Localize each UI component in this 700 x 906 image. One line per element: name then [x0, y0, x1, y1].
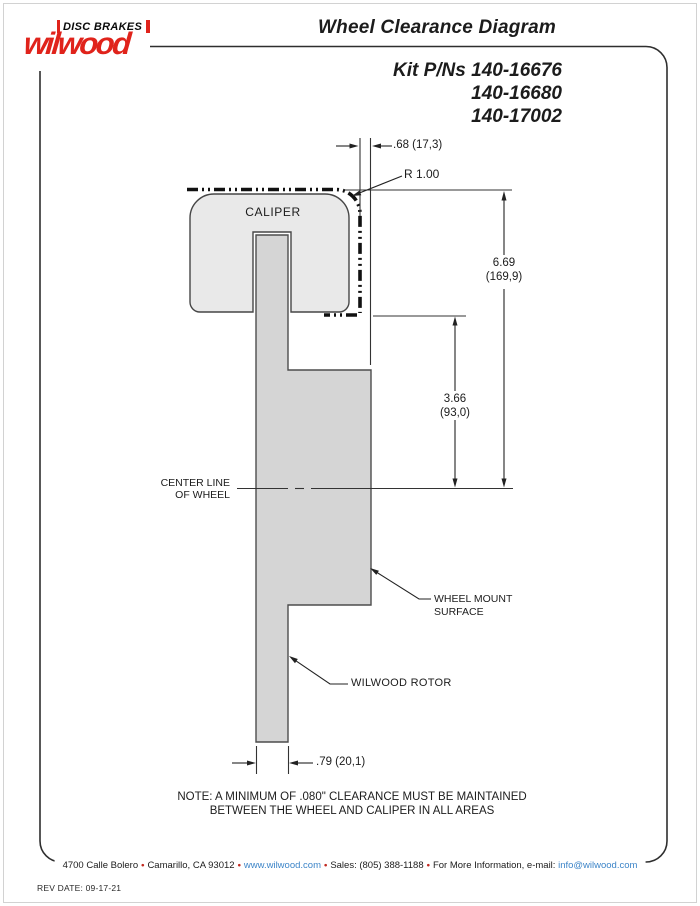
- footer-address: 4700 Calle Bolero: [63, 860, 139, 871]
- dimension-offset-mm: (93,0): [425, 407, 485, 421]
- centerline-label-line2: OF WHEEL: [138, 489, 230, 501]
- centerline-label-line1: CENTER LINE: [138, 477, 230, 489]
- rev-date: REV DATE: 09-17-21: [37, 883, 121, 893]
- kit-part-numbers: Kit P/Ns 140-16676 140-16680 140-17002: [393, 59, 562, 128]
- clearance-note: NOTE: A MINIMUM OF .080" CLEARANCE MUST …: [98, 791, 606, 818]
- wilwood-logo: DISC BRAKES wilwood: [24, 15, 174, 65]
- dimension-radius-label: R 1.00: [404, 167, 439, 181]
- dimension-offset-inches: 3.66: [425, 393, 485, 407]
- wheel-mount-label-line1: WHEEL MOUNT: [434, 593, 512, 606]
- dimension-height-label: 6.69 (169,9): [474, 257, 534, 284]
- footer-email-link[interactable]: info@wilwood.com: [558, 860, 637, 871]
- clearance-note-line2: BETWEEN THE WHEEL AND CALIPER IN ALL ARE…: [98, 805, 606, 819]
- kit-line-1: Kit P/Ns 140-16676: [393, 59, 562, 82]
- centerline-label: CENTER LINE OF WHEEL: [138, 477, 230, 501]
- footer-bullet: •: [427, 860, 430, 871]
- footer-bullet: •: [141, 860, 144, 871]
- footer-bullet: •: [324, 860, 327, 871]
- footer-website-link[interactable]: www.wilwood.com: [244, 860, 321, 871]
- page-title: Wheel Clearance Diagram: [287, 17, 587, 39]
- wheel-mount-surface-label: WHEEL MOUNT SURFACE: [434, 593, 512, 618]
- dimension-height-mm: (169,9): [474, 271, 534, 285]
- clearance-diagram-canvas: [0, 0, 700, 906]
- caliper-label: CALIPER: [220, 205, 326, 219]
- logo-red-bar-right: [146, 20, 150, 33]
- footer-more-info: For More Information, e-mail:: [433, 860, 555, 871]
- logo-wilwood-script: wilwood: [22, 26, 130, 62]
- dimension-rotor-width-label: .79 (20,1): [316, 756, 365, 768]
- footer-sales: Sales: (805) 388-1188: [330, 860, 423, 871]
- dimension-offset-label: 3.66 (93,0): [425, 393, 485, 420]
- footer-contact-bar: 4700 Calle Bolero•Camarillo, CA 93012•ww…: [55, 860, 646, 871]
- page: { "header": { "logo": { "disc_brakes": "…: [0, 0, 700, 906]
- dimension-height-inches: 6.69: [474, 257, 534, 271]
- wheel-mount-label-line2: SURFACE: [434, 606, 512, 619]
- footer-city: Camarillo, CA 93012: [147, 860, 234, 871]
- footer-bullet: •: [238, 860, 241, 871]
- kit-line-3: 140-17002: [393, 105, 562, 128]
- dimension-gap-label: .68 (17,3): [393, 139, 442, 151]
- clearance-note-line1: NOTE: A MINIMUM OF .080" CLEARANCE MUST …: [98, 791, 606, 805]
- wilwood-rotor-label: WILWOOD ROTOR: [351, 677, 452, 689]
- kit-line-2: 140-16680: [393, 82, 562, 105]
